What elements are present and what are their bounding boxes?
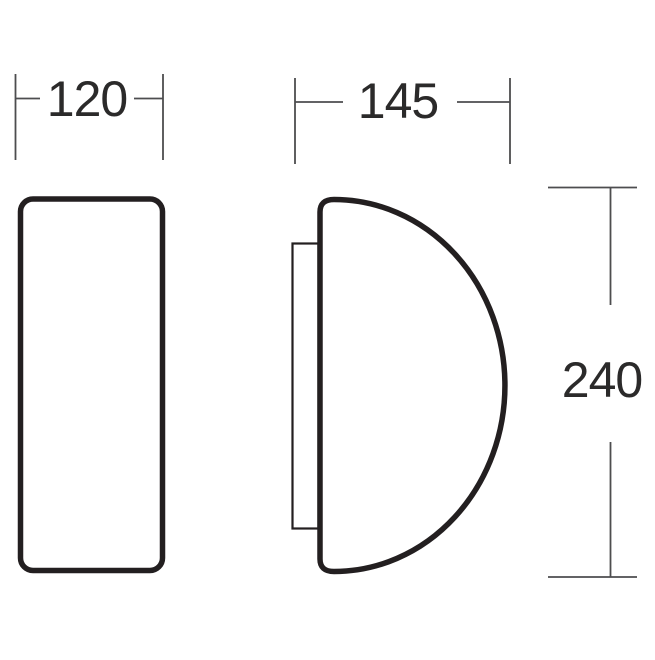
side-view-mounting-plate (293, 244, 319, 529)
side-view-diffuser-profile (320, 200, 505, 572)
technical-drawing-canvas: 120 145 240 (0, 0, 655, 655)
technical-drawing: 120 145 240 (0, 0, 655, 655)
dimension-width: 120 (16, 71, 164, 160)
front-view-body-outline (21, 199, 163, 571)
height-dimension-value: 240 (562, 352, 642, 408)
depth-dimension-value: 145 (358, 73, 438, 129)
dimension-depth: 145 (295, 73, 510, 164)
side-view (293, 200, 505, 572)
width-dimension-value: 120 (47, 71, 127, 127)
dimension-height: 240 (548, 188, 642, 578)
front-view (21, 199, 163, 571)
